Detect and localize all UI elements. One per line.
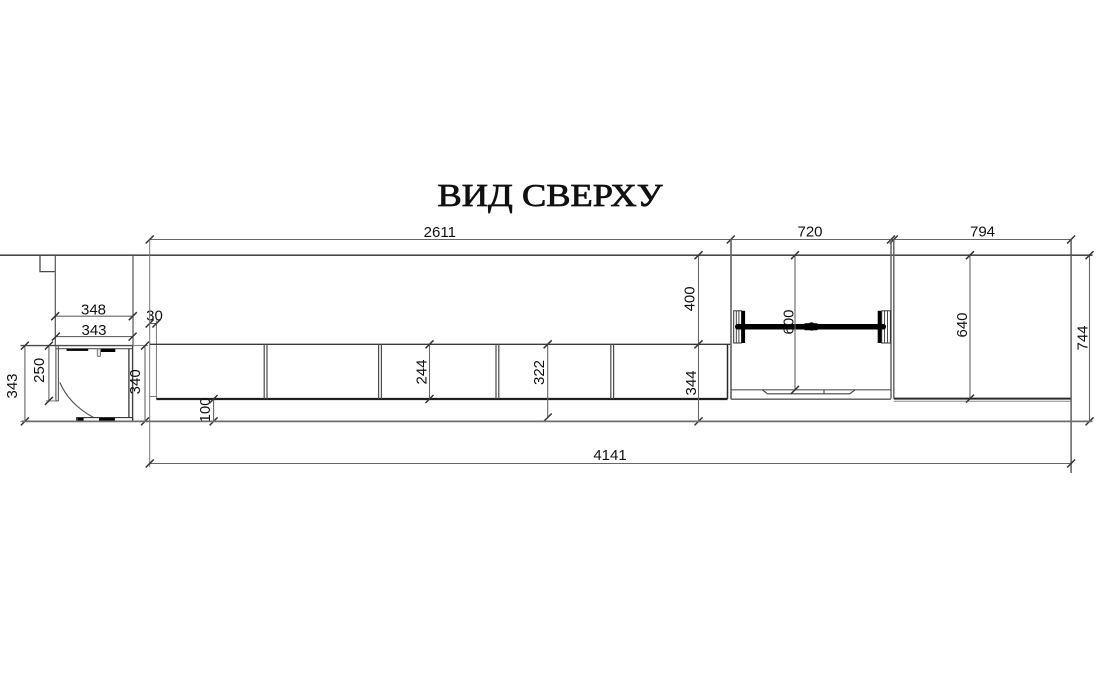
svg-text:2611: 2611 bbox=[424, 224, 456, 241]
svg-text:640: 640 bbox=[954, 312, 971, 337]
svg-text:343: 343 bbox=[4, 373, 21, 398]
svg-text:340: 340 bbox=[127, 369, 144, 394]
svg-text:400: 400 bbox=[682, 286, 699, 311]
svg-text:322: 322 bbox=[531, 360, 548, 385]
svg-text:794: 794 bbox=[970, 224, 995, 241]
svg-text:344: 344 bbox=[683, 370, 700, 395]
svg-text:250: 250 bbox=[31, 358, 48, 383]
svg-text:244: 244 bbox=[414, 359, 431, 384]
svg-text:744: 744 bbox=[1075, 325, 1092, 350]
svg-text:348: 348 bbox=[81, 302, 106, 319]
svg-text:343: 343 bbox=[81, 322, 106, 339]
svg-text:600: 600 bbox=[780, 309, 797, 334]
svg-text:30: 30 bbox=[146, 307, 163, 324]
svg-text:ВИД СВЕРХУ: ВИД СВЕРХУ bbox=[438, 178, 664, 213]
svg-text:100: 100 bbox=[197, 397, 214, 422]
svg-text:720: 720 bbox=[797, 224, 822, 241]
svg-text:4141: 4141 bbox=[593, 447, 626, 464]
